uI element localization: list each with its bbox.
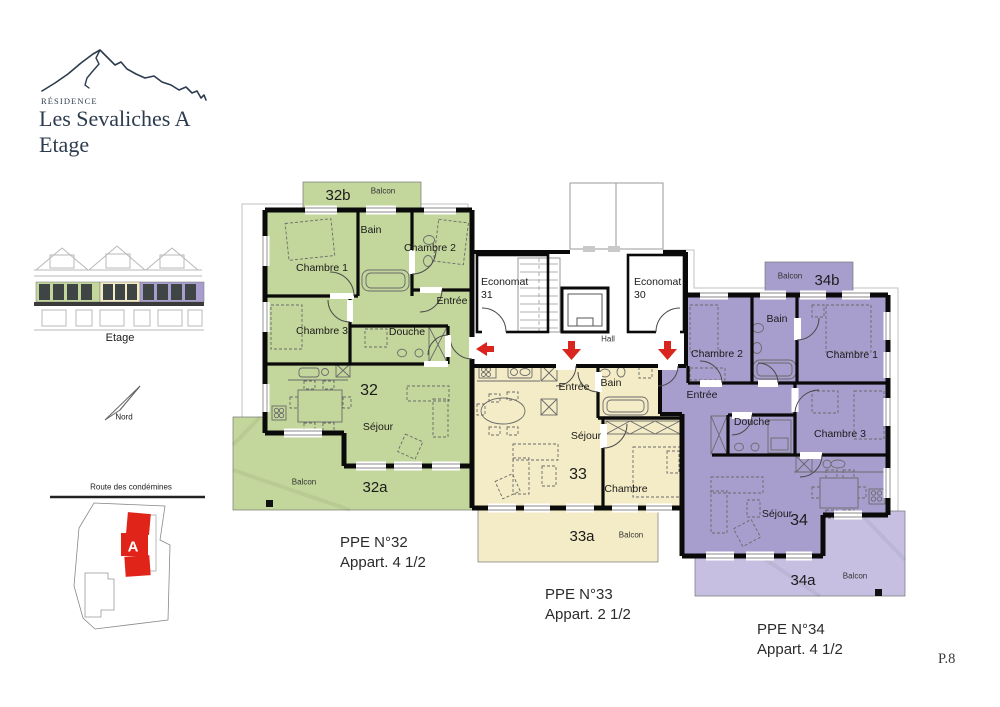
economat-31-line2: 31 xyxy=(481,289,528,302)
balcony-34a-id: 34a xyxy=(790,573,815,590)
arrow-left-apt32 xyxy=(476,342,494,356)
ppe-34-subtitle: Appart. 4 1/2 xyxy=(757,640,843,660)
ppe-33-label: PPE N°33 Appart. 2 1/2 xyxy=(545,585,631,625)
room-label-chambre3-32: Chambre 3 xyxy=(296,326,348,338)
room-label-sejour-34: Séjour xyxy=(762,509,792,521)
floor-plan-page: { "page": { "number": "P.8" }, "logo": {… xyxy=(0,0,1000,707)
arrow-down-apt33 xyxy=(562,341,581,360)
room-label-hall: Hall xyxy=(601,336,615,345)
balcony-32b-id: 32b xyxy=(325,188,350,205)
ppe-32-subtitle: Appart. 4 1/2 xyxy=(340,553,426,573)
room-label-chambre3-34: Chambre 3 xyxy=(814,429,866,441)
room-label-chambre1-32: Chambre 1 xyxy=(296,263,348,275)
balcony-32a-id: 32a xyxy=(362,480,387,497)
room-label-bain-33: Bain xyxy=(600,378,621,390)
economat-31-line1: Economat xyxy=(481,276,528,289)
apt-34-number: 34 xyxy=(790,512,808,530)
elevator xyxy=(562,288,608,332)
entrance-porch xyxy=(570,183,663,252)
page-number: P.8 xyxy=(938,651,955,668)
balcony-34b-label: Balcon xyxy=(778,273,802,282)
arrow-down-apt34 xyxy=(658,341,677,360)
room-label-chambre1-34: Chambre 1 xyxy=(826,350,878,362)
balcony-32b-label: Balcon xyxy=(371,188,395,197)
room-label-economat-30: Economat 30 xyxy=(634,276,681,302)
balcony-32a-label: Balcon xyxy=(292,479,316,488)
economat-30-line1: Economat xyxy=(634,276,681,289)
room-label-douche-32: Douche xyxy=(389,327,425,339)
balcony-33a-id: 33a xyxy=(569,529,594,546)
room-label-chambre2-32: Chambre 2 xyxy=(404,243,456,255)
balcony-marker-34a xyxy=(875,589,882,596)
balcony-marker-32a xyxy=(266,500,273,507)
room-label-sejour-33: Séjour xyxy=(571,431,601,443)
ppe-32-title: PPE N°32 xyxy=(340,533,426,553)
room-label-douche-34: Douche xyxy=(734,417,770,429)
apt-32-number: 32 xyxy=(360,382,378,400)
balcony-33a-label: Balcon xyxy=(619,532,643,541)
economat-30-line2: 30 xyxy=(634,289,681,302)
ppe-34-title: PPE N°34 xyxy=(757,620,843,640)
room-label-entree-33: Entrée xyxy=(559,382,590,394)
room-label-economat-31: Economat 31 xyxy=(481,276,528,302)
room-label-bain-32: Bain xyxy=(360,225,381,237)
ppe-33-subtitle: Appart. 2 1/2 xyxy=(545,605,631,625)
room-label-entree-32: Entrée xyxy=(437,296,468,308)
room-label-chambre2-34: Chambre 2 xyxy=(691,349,743,361)
room-label-entree-34: Entrée xyxy=(687,390,718,402)
entrance-arrows xyxy=(476,341,677,360)
room-label-bain-34: Bain xyxy=(766,314,787,326)
ppe-32-label: PPE N°32 Appart. 4 1/2 xyxy=(340,533,426,573)
balcony-34b-id: 34b xyxy=(814,273,839,290)
apt-33-number: 33 xyxy=(569,466,587,484)
balcony-34a-label: Balcon xyxy=(843,573,867,582)
ppe-33-title: PPE N°33 xyxy=(545,585,631,605)
ppe-34-label: PPE N°34 Appart. 4 1/2 xyxy=(757,620,843,660)
room-label-chambre-33: Chambre xyxy=(604,484,647,496)
room-label-sejour-32: Séjour xyxy=(363,422,393,434)
